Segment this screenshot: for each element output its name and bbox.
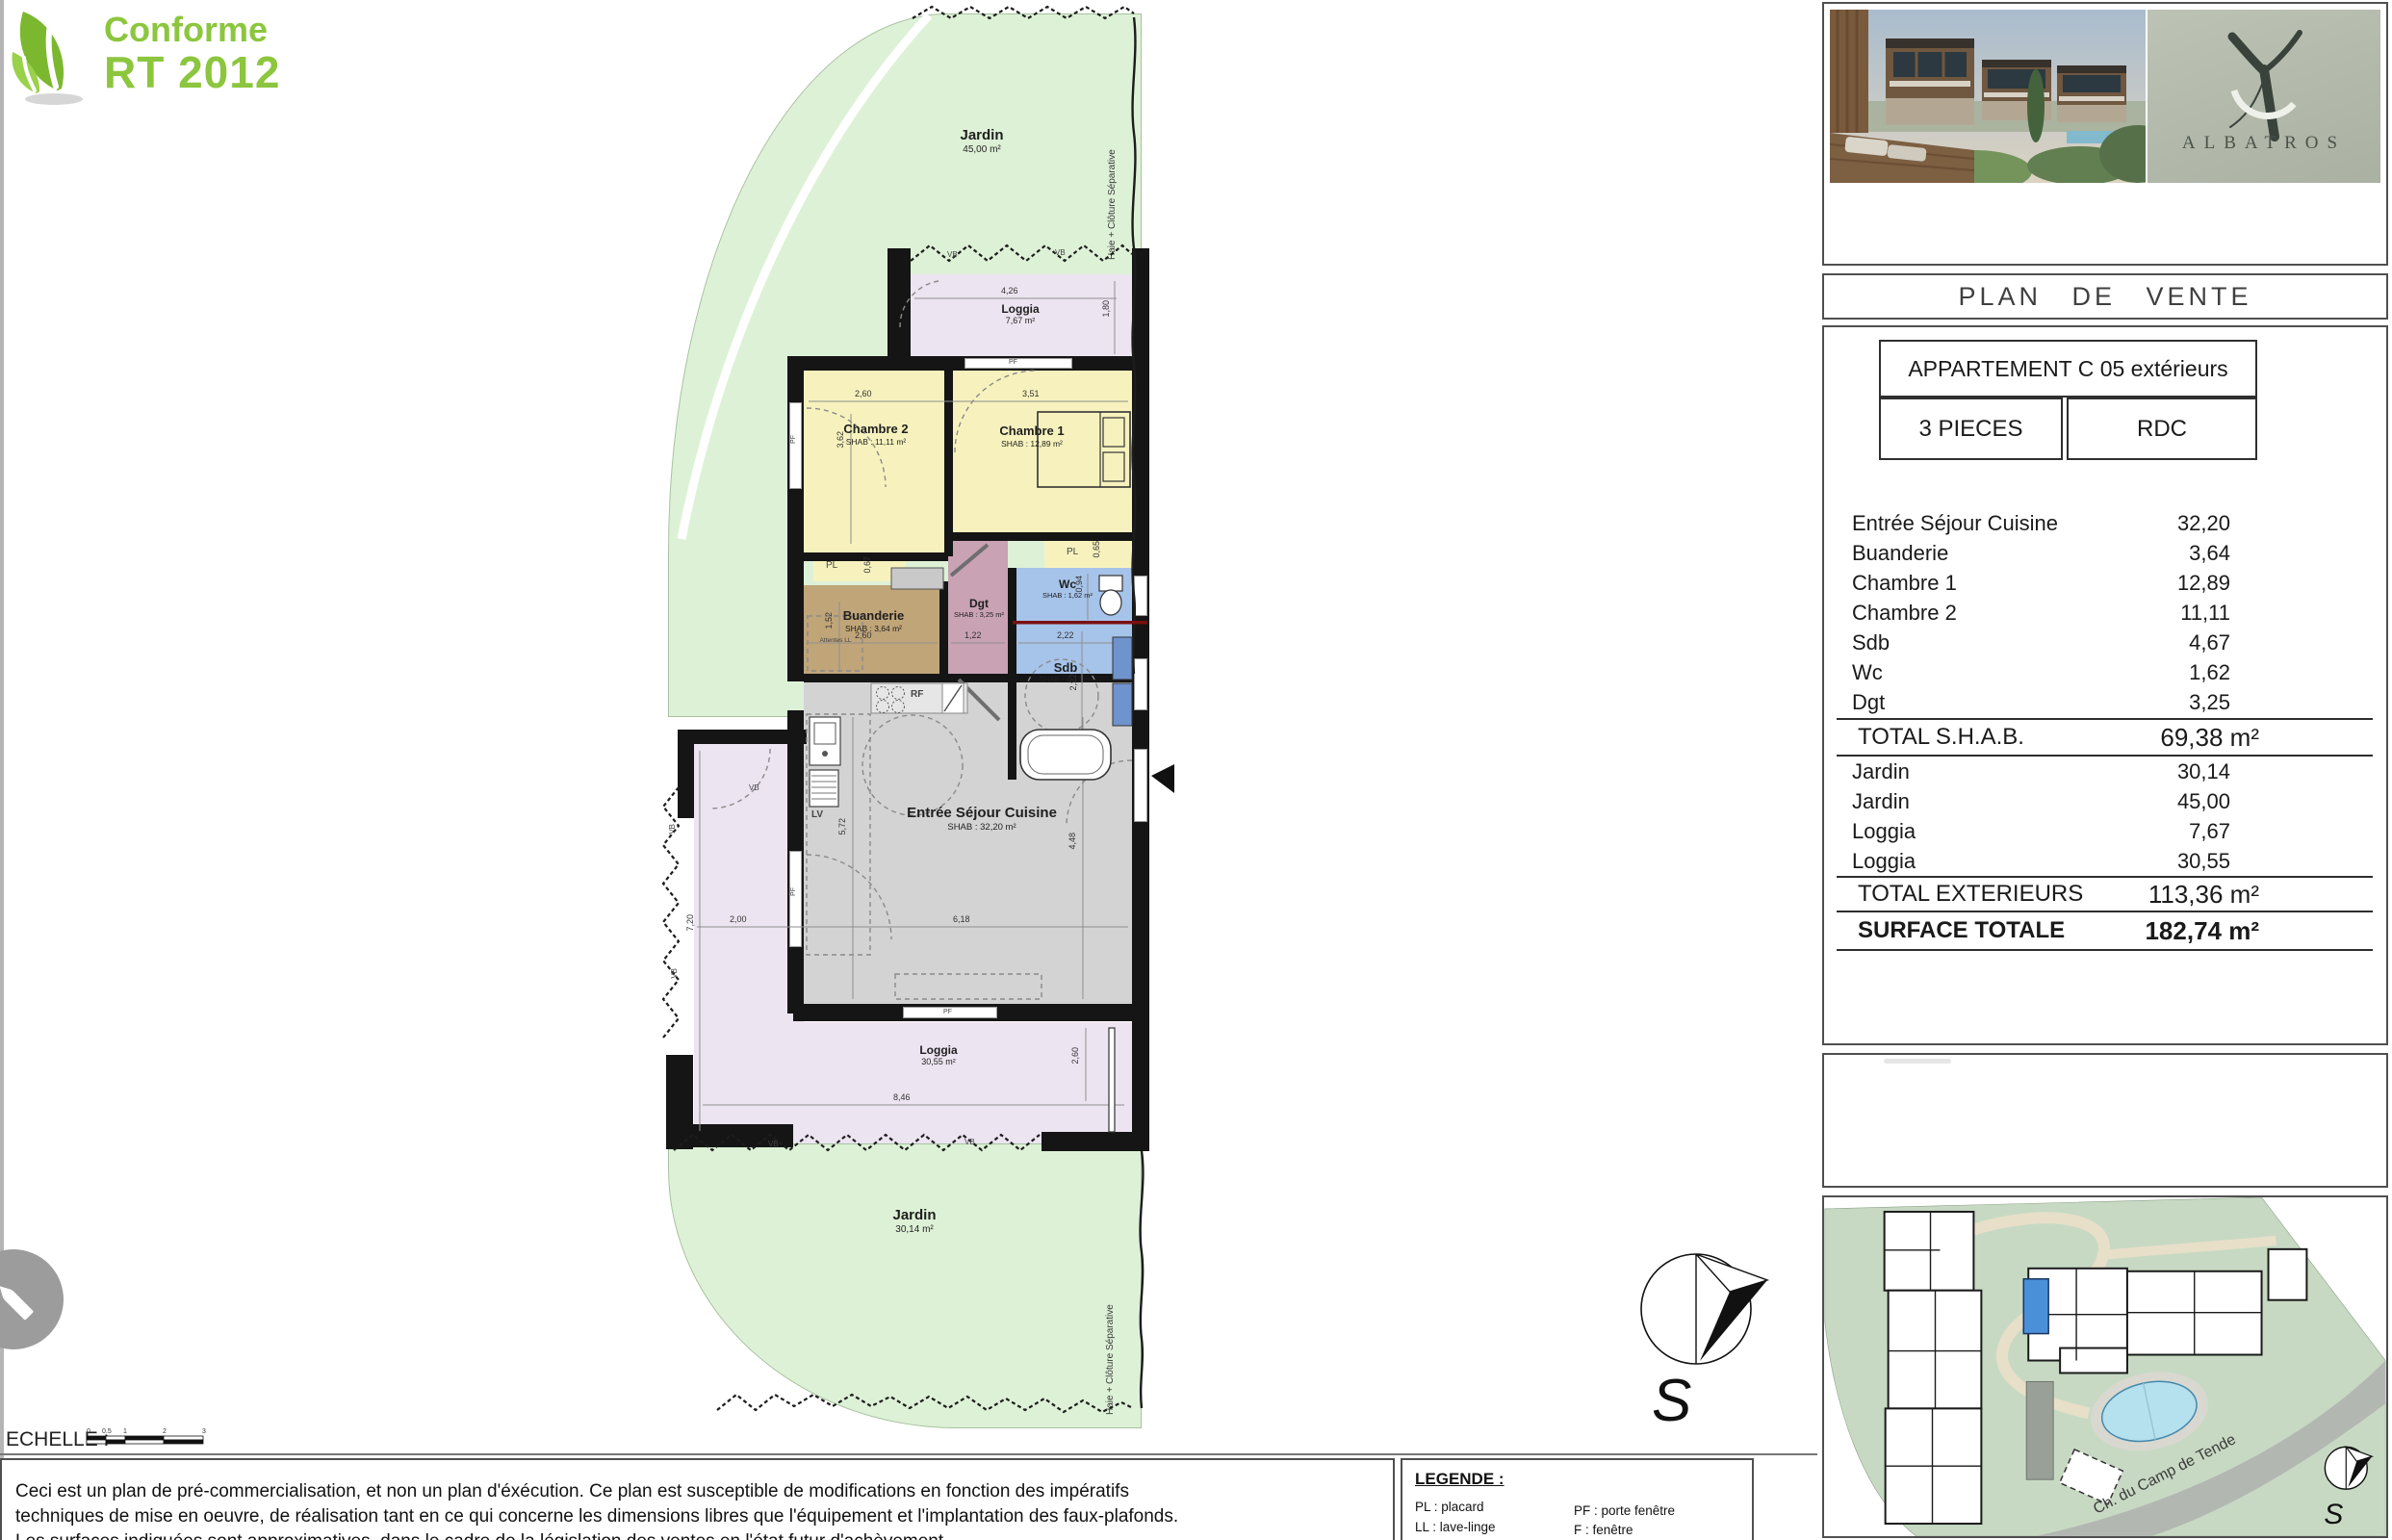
dim: 5,72 [837,818,847,835]
svg-text:0: 0 [87,1428,90,1435]
dim: 1,22 [965,630,982,640]
dim: 0,65 [1092,541,1101,558]
pf-tag: PF [943,1009,952,1015]
legend-item: F : fenêtre [1574,1520,1633,1540]
vb-tag: VB [749,783,759,792]
pieces-cell: 3 PIECES [1879,398,2063,460]
highlighted-unit [2023,1279,2048,1334]
dim: 0,94 [1074,576,1084,593]
dim: 2,60 [1070,1047,1080,1065]
wall [953,532,1132,541]
dgt-label: Dgt SHAB : 3,25 m² [951,597,1007,619]
buanderie-label: Buanderie SHAB : 3,64 m² [818,608,929,633]
albatros-bird-icon [2148,10,2380,144]
total-surface-row: SURFACE TOTALE182,74 m² [1837,912,2373,949]
leaf-icon [8,2,99,108]
albatros-wordmark: ALBATROS [2148,133,2380,154]
plan-de-vente-box: PLAN DE VENTE [1822,273,2388,320]
jardin-top-label: Jardin 45,00 m² [919,127,1044,156]
area-row: Entrée Séjour Cuisine32,20 [1837,508,2373,538]
badge-line2: RT 2012 [104,46,280,98]
dim: 6,18 [953,914,970,924]
area-row: Chambre 112,89 [1837,568,2373,598]
legend-item: PF : porte fenêtre [1574,1501,1675,1521]
area-row: Loggia7,67 [1837,816,2373,846]
wall [678,730,807,744]
window-f [1134,576,1147,616]
area-row: Dgt3,25 [1837,687,2373,717]
window-fsa [1134,658,1147,710]
area-row: Sdb4,67 [1837,628,2373,657]
site-plan-box: Ch. du Camp de Tende S [1822,1195,2388,1538]
stamp-box [1822,1053,2388,1188]
area-row: Buanderie3,64 [1837,538,2373,568]
dim: 2,22 [1068,674,1078,691]
dim: 2,60 [855,389,872,398]
site-compass-south: S [2324,1499,2343,1530]
header-box: ALBATROS [1822,2,2388,266]
legend-title: LEGENDE : [1415,1470,1505,1489]
floor-cell: RDC [2067,398,2257,460]
area-row: Loggia30,55 [1837,846,2373,876]
svg-text:0.5: 0.5 [102,1428,112,1435]
pl-tag: PL [826,560,837,571]
stamp-trace [1884,1059,1951,1064]
room-chambre1 [953,370,1132,536]
loggia-bottom-label: Loggia 30,55 m² [871,1043,1006,1067]
dim: 1,52 [824,612,834,629]
chambre1-label: Chambre 1 SHAB : 12,89 m² [974,423,1090,449]
badge-line1: Conforme [104,10,268,50]
disclaimer-line: Les surfaces indiquées sont approximativ… [15,1529,948,1540]
albatros-logo: ALBATROS [2148,10,2380,183]
legend-item: LL : lave-linge [1415,1517,1496,1537]
edit-button[interactable] [0,1249,64,1349]
total-shab-row: TOTAL S.H.A.B.69,38 m² [1837,720,2373,755]
pf-tag: PF [790,435,797,444]
lv-tag: LV [811,809,823,820]
apartment-title-cell: APPARTEMENT C 05 extérieurs [1879,340,2257,398]
pf-tag: PF [1009,359,1017,366]
dim: 4,48 [1067,833,1077,850]
divider [0,1453,1817,1455]
dim: 3,51 [1022,389,1040,398]
room-sejour [804,682,1132,1004]
sejour-label: Entrée Séjour Cuisine SHAB : 32,20 m² [895,805,1068,833]
wall [1042,1132,1149,1151]
entrance-door [1134,749,1147,822]
chambre2-label: Chambre 2 SHAB : 11,11 m² [813,422,939,447]
table-rule [1837,949,2373,951]
project-photo [1830,10,2146,183]
rf-tag: RF [911,689,923,700]
area-row: Jardin45,00 [1837,786,2373,816]
room-chambre2 [804,370,944,553]
dim: 8,46 [893,1092,911,1102]
scale-bar: 0 0.5 1 2 3 [85,1426,219,1450]
window-pf [789,851,802,947]
dim: 3,62 [836,431,845,449]
site-plan-map: Ch. du Camp de Tende S [1824,1197,2386,1536]
plan-de-vente-title: PLAN DE VENTE [1824,275,2386,318]
rt2012-badge: Conforme RT 2012 [8,2,335,108]
compass-south-label: S [1652,1367,1691,1435]
disclaimer-line: Ceci est un plan de pré-commercialisatio… [15,1479,1129,1504]
hedge-label-top: Haie + Clôture Séparative [1107,77,1118,260]
jardin-bottom-label: Jardin 30,14 m² [847,1207,982,1236]
dim: 2,22 [1057,630,1074,640]
wall [939,581,948,680]
entrance-arrow-icon [1151,764,1174,793]
loggia-top-label: Loggia 7,67 m² [963,302,1078,326]
legend-item: PL : placard [1415,1497,1484,1517]
vb-tag: VB [670,968,679,979]
dim: 7,20 [685,914,695,932]
wall [1132,248,1149,360]
area-row: Chambre 211,11 [1837,598,2373,628]
dim: 1,80 [1101,300,1111,318]
svg-text:2: 2 [163,1428,167,1435]
window-pf [965,358,1072,369]
total-ext-row: TOTAL EXTERIEURS113,36 m² [1837,878,2373,911]
disclaimer-line: techniques de mise en oeuvre, de réalisa… [15,1504,1178,1529]
wall [944,370,953,556]
attentes-ll-tag: Attentes LL [810,637,862,644]
svg-text:1: 1 [123,1428,127,1435]
disclaimer-box: Ceci est un plan de pré-commercialisatio… [0,1458,1395,1540]
area-row: Wc1,62 [1837,657,2373,687]
window-pf [789,402,802,489]
wall [787,581,804,681]
pl-tag: PL [1067,547,1078,557]
vb-tag: VB [965,1138,975,1146]
dim: 0,67 [862,556,872,574]
svg-text:3: 3 [202,1428,206,1435]
pencil-icon [0,1249,64,1349]
vb-tag: VB [768,1140,779,1148]
sdb-label: Sdb SHAB : 4,67 m² [1032,660,1099,684]
dim: 2,00 [730,914,747,924]
garden-bottom [668,1143,1142,1428]
area-row: Jardin30,14 [1837,757,2373,786]
legend-box: LEGENDE : PL : placard LL : lave-linge L… [1401,1458,1754,1540]
plan-de-vente-document: Conforme RT 2012 Jardin 45,00 m² Jardin … [0,0,2392,1540]
compass-icon [1641,1254,1767,1364]
vb-tag: VB [947,250,958,259]
hedge-label-bottom: Haie + Clôture Séparative [1105,1242,1116,1415]
vb-tag: VB [1055,248,1066,257]
wc-label: Wc SHAB : 1,62 m² [1038,577,1097,600]
vb-tag: VB [668,824,677,834]
wall [887,248,911,360]
pf-tag: PF [790,887,797,896]
dim: 4,26 [1001,286,1018,295]
